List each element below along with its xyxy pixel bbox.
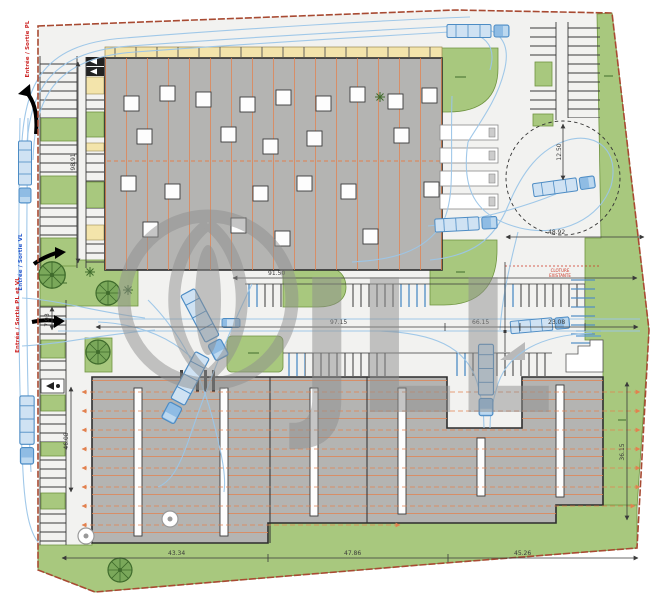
tree-icon (39, 262, 65, 288)
dim-turning-radius: 12.50 (556, 143, 563, 160)
parking-island (41, 118, 77, 141)
tree-icon (96, 281, 120, 305)
building-north-canopy (105, 47, 442, 58)
shrub-icon (85, 267, 95, 277)
dim-south-3: 45.26 (514, 550, 531, 557)
parking-island (535, 62, 552, 86)
dim-south-1: 43.34 (168, 550, 185, 557)
parking-island (41, 442, 65, 456)
tree-icon (108, 558, 132, 582)
parking-island (86, 182, 104, 208)
parking-island (86, 112, 104, 137)
dim-south-2: 47.86 (344, 550, 361, 557)
parking-island (41, 493, 65, 509)
tree-icon (86, 340, 110, 364)
watermark-text: JLL (289, 240, 553, 456)
entry-label-top: Entrée / Sortie PL (24, 20, 31, 77)
plan-canvas: 12.50 (0, 0, 657, 600)
parking-island (41, 176, 77, 204)
truck-icon (20, 396, 34, 464)
shrub-icon (375, 92, 385, 102)
dim-road-width: 7.93 (44, 313, 51, 327)
site-plan: 12.50 (0, 0, 657, 600)
dim-turning-width: 48.92 (548, 229, 565, 236)
entry-label-plvl: Entrée / Sortie PL et VL (14, 277, 21, 353)
entry-labels: Entrée / Sortie PL Entrée / Sortie VL En… (14, 20, 31, 353)
truck-icon (19, 141, 32, 203)
dim-sw-aisle: 46.08 (63, 432, 70, 449)
parking-west-column-2 (86, 57, 104, 268)
parking-island (41, 395, 65, 411)
dim-left-parking: 98.91 (70, 153, 77, 170)
dim-east-depth: 36.15 (619, 443, 626, 460)
truck-icon (447, 25, 509, 38)
